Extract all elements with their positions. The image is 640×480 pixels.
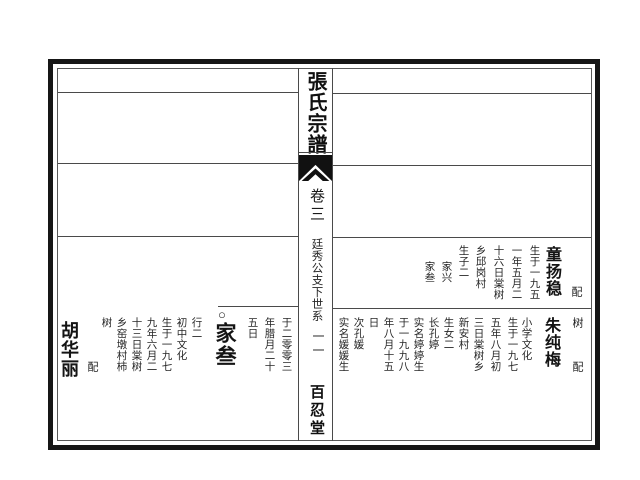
- detail-column: 生子二: [457, 245, 468, 278]
- detail-column: 初中文化: [175, 317, 186, 361]
- son-name: 家兴: [440, 261, 451, 283]
- detail-column: 新安村: [457, 317, 468, 350]
- detail-column: 十三日棠树: [130, 317, 141, 372]
- detail-column: 五年八月初: [489, 317, 500, 372]
- spouse-label: 配: [571, 361, 582, 373]
- detail-column: 年八月十五: [382, 317, 393, 372]
- spine-separator: [299, 152, 332, 153]
- carryover-text: 树: [571, 317, 582, 329]
- row-line: [58, 163, 298, 164]
- detail-column: 次孔媛: [352, 317, 363, 350]
- detail-column: 乡窑墩村柿: [115, 317, 126, 372]
- fishtail-marker: [299, 155, 332, 181]
- row-line: [58, 236, 298, 237]
- detail-column: 生女二: [442, 317, 453, 350]
- row-line: [333, 165, 591, 166]
- spine-line-right: [298, 68, 299, 441]
- spouse-name: 童扬稳: [543, 246, 559, 297]
- son-name: 家叁: [423, 261, 434, 283]
- genealogy-page: 張氏宗譜 卷三 廷秀公支下世系 一一 百忍堂 配 童扬稳 生于一九五 一年五月二…: [0, 0, 640, 480]
- detail-column: 实名婷婷生: [412, 317, 423, 372]
- detail-column: 行二: [190, 317, 201, 339]
- spouse-name: 胡华丽: [60, 321, 78, 378]
- detail-column: 乡邱岗村: [474, 245, 485, 289]
- detail-column: 九年六月二: [145, 317, 156, 372]
- row-line-partial: [218, 306, 298, 307]
- carryover-column: 五日: [246, 317, 257, 339]
- hall-name: 百忍堂: [308, 384, 323, 438]
- detail-column: 生于一九五: [528, 245, 539, 300]
- detail-column: 十六日棠树: [492, 245, 503, 300]
- spouse-label: 配: [570, 286, 581, 298]
- spouse-name: 朱纯梅: [542, 317, 558, 368]
- spouse-label: 配: [86, 361, 97, 373]
- detail-column: 三日棠树乡: [472, 317, 483, 372]
- detail-column: 树: [100, 317, 111, 328]
- carryover-column: 年腊月二十: [263, 317, 274, 372]
- row-line: [333, 93, 591, 94]
- detail-column: 日: [367, 317, 378, 328]
- book-title: 張氏宗譜: [305, 71, 325, 155]
- detail-column: 生于一九七: [506, 317, 517, 372]
- page-number: 一一: [312, 330, 324, 358]
- volume-label: 卷三: [308, 188, 323, 224]
- detail-column: 实名媛媛生: [337, 317, 348, 372]
- entry-marker: ○: [218, 308, 226, 321]
- row-line: [333, 308, 591, 309]
- section-label: 廷秀公支下世系: [310, 238, 322, 322]
- detail-column: 一年五月二: [510, 245, 521, 300]
- row-line: [333, 237, 591, 238]
- detail-column: 于一九九八: [397, 317, 408, 372]
- detail-column: 小学文化: [520, 317, 531, 361]
- detail-column: 生于一九七: [160, 317, 171, 372]
- row-line: [58, 92, 298, 93]
- carryover-column: 于二零零三: [280, 317, 291, 372]
- entry-name: 家叁: [214, 322, 235, 368]
- detail-column: 长孔婷: [427, 317, 438, 350]
- spine-line-left: [332, 68, 333, 441]
